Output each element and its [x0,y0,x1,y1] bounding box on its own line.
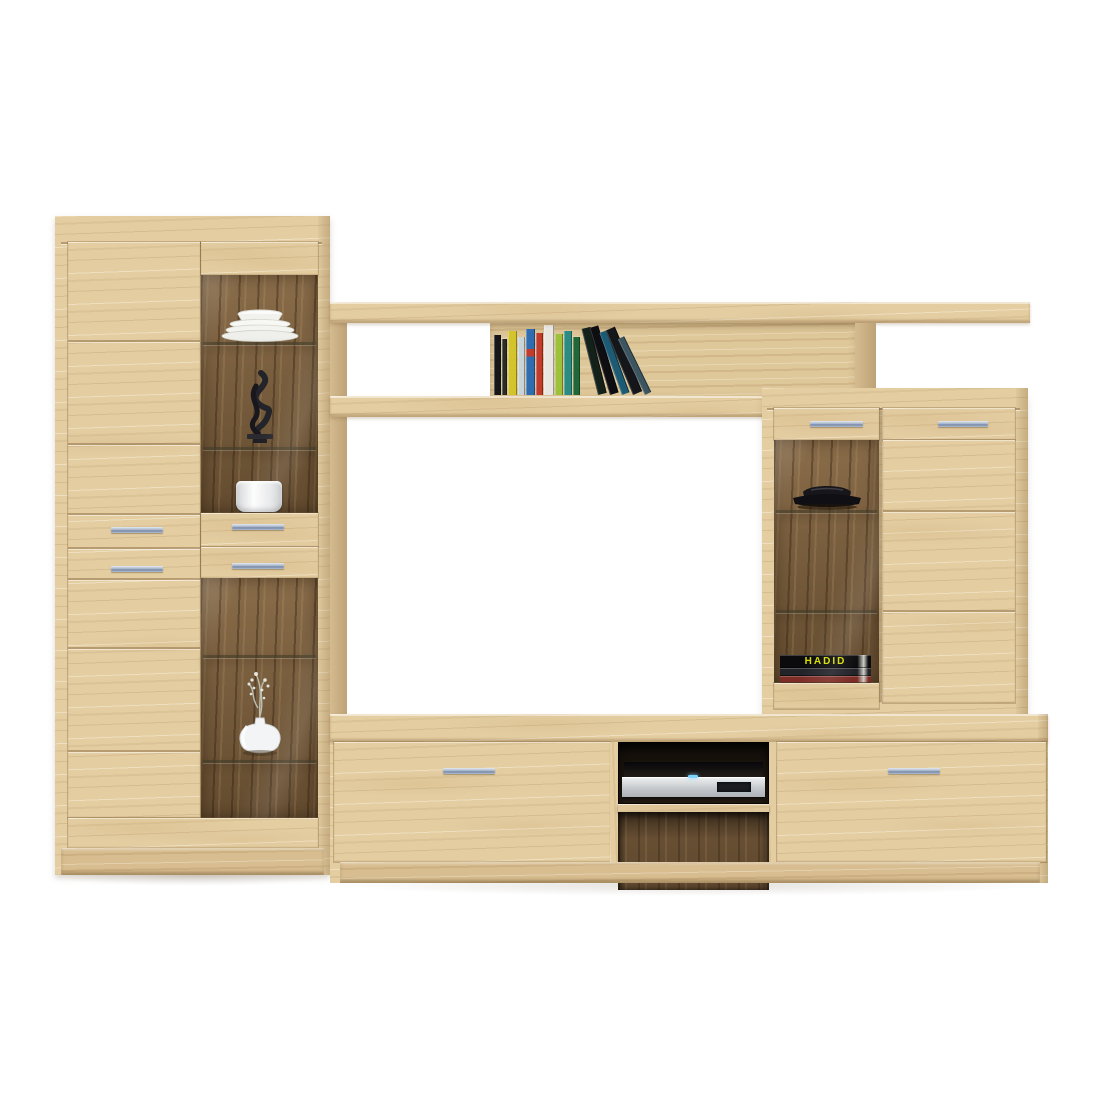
drawer-handle[interactable] [810,421,863,427]
door-seam [883,610,1015,612]
tv-left-drawer [334,742,610,862]
book-spine [536,333,543,395]
book-spine [780,676,871,683]
book-hadid: HADID [780,655,871,668]
media-player-front [622,777,765,797]
display-back-panel [774,440,879,683]
glass-door-top-rail [201,547,318,578]
right-cabinet-left-drawer [774,408,879,440]
glass-column-drawer [201,513,318,547]
drawer-handle[interactable] [888,768,940,774]
door-seam [68,340,200,342]
glass-shelf [203,342,316,345]
lower-glass-display [201,578,318,818]
upper-glass-display [201,275,318,513]
book-spine [502,339,507,395]
book-spine-title: HADID [805,657,847,667]
vase-with-branch [227,656,293,765]
media-player [622,748,765,798]
glass-shelf [203,447,316,450]
door-handle[interactable] [938,421,988,427]
glass-shelf [776,510,877,513]
book-spine [555,334,563,395]
niche-shelf [618,804,769,812]
book-spine [564,331,572,395]
glass-column-top-rail [201,242,318,275]
right-cabinet-door-top [883,408,1015,440]
standing-books [494,323,580,395]
right-cabinet-door [883,440,1015,703]
left-cabinet-bottom-rail [68,818,318,848]
door-seam [68,750,200,752]
book-spine [494,335,501,395]
left-cabinet-plinth [61,848,324,875]
tv-stand-plinth [340,862,1040,883]
book-spine [526,329,535,395]
shelf-left-support [330,302,347,714]
media-niche [610,742,777,862]
media-player-led [688,775,698,778]
book-spine [544,325,554,395]
glass-shelf [776,610,877,613]
right-cabinet-bottom-rail [774,683,879,709]
shelf-back-panel [490,323,857,396]
door-seam [68,647,200,649]
right-glass-display: HADID [774,440,879,683]
white-pot [236,481,282,512]
right-cabinet-side-edge [1016,388,1028,715]
door-seam [68,578,200,580]
shelf-right-support [855,323,876,392]
tv-stand-top-board [330,714,1048,742]
door-seam [68,513,200,515]
door-handle[interactable] [111,566,163,572]
left-cabinet-side-edge [318,216,330,875]
left-cabinet-door [68,242,200,818]
glass-shelf [203,760,316,763]
door-handle[interactable] [111,527,163,533]
right-display-cabinet: HADID [762,388,1028,715]
door-seam [68,547,200,549]
display-book-stack: HADID [780,655,871,683]
abstract-sculpture [237,368,283,451]
drawer-handle[interactable] [443,768,495,774]
plates-stack [215,306,305,347]
tv-right-drawer [777,742,1046,862]
glass-door-handle[interactable] [232,563,284,569]
left-display-cabinet [55,216,330,875]
book-spine [573,337,580,395]
book-spine [780,668,871,676]
right-cabinet-center-divider [879,408,882,702]
media-player-display [717,782,751,792]
door-seam [883,510,1015,512]
drawer-handle[interactable] [232,524,284,530]
book-spine [508,331,517,395]
product-photo-wall-unit: HADID [0,0,1100,1100]
book-spine [518,337,525,395]
tv-stand [330,714,1048,883]
shelf-top-board [330,302,1030,323]
door-seam [68,443,200,445]
